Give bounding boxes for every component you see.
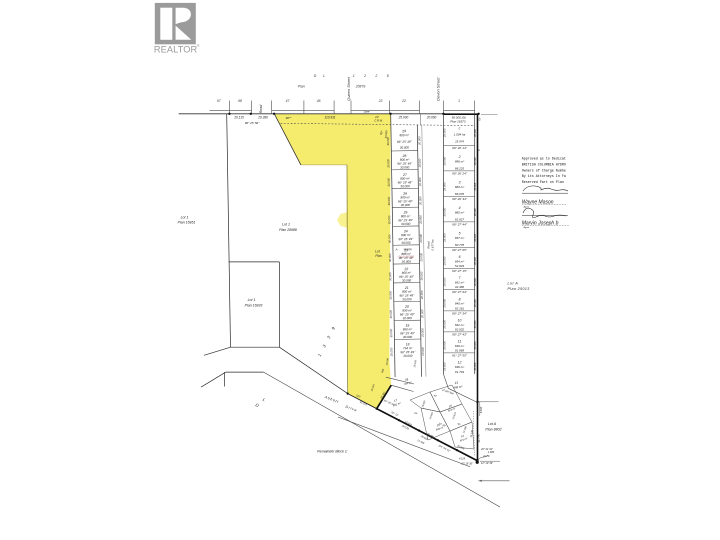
- svg-text:12: 12: [458, 361, 462, 365]
- svg-text:1.004 ha: 1.004 ha: [454, 132, 466, 136]
- svg-text:25.000: 25.000: [442, 277, 446, 287]
- svg-text:30.000: 30.000: [403, 316, 413, 320]
- svg-text:90° 26' 34": 90° 26' 34": [452, 197, 468, 201]
- svg-text:25.000: 25.000: [442, 298, 446, 308]
- svg-text:890 m²: 890 m²: [402, 308, 412, 312]
- svg-text:Lot A: Lot A: [508, 281, 519, 285]
- svg-text:20.000: 20.000: [421, 347, 425, 357]
- svg-text:91.704: 91.704: [455, 370, 465, 374]
- svg-text:67: 67: [217, 99, 221, 103]
- svg-text:20.000: 20.000: [474, 208, 477, 217]
- svg-text:896 m²: 896 m²: [455, 159, 465, 163]
- svg-text:20.000: 20.000: [420, 271, 424, 281]
- svg-text:22: 22: [401, 99, 406, 103]
- svg-text:Remainder Block C: Remainder Block C: [317, 449, 348, 453]
- svg-text:68: 68: [238, 99, 242, 103]
- svg-text:30.000: 30.000: [388, 291, 392, 300]
- svg-text:90.000 (D): 90.000 (D): [452, 116, 466, 120]
- svg-text:30.000: 30.000: [401, 222, 411, 226]
- svg-text:PCP 12336: PCP 12336: [398, 255, 414, 259]
- svg-text:86.076: 86.076: [455, 192, 465, 196]
- svg-text:20.000: 20.000: [474, 233, 477, 242]
- svg-text:90° 27' 44": 90° 27' 44": [452, 222, 468, 226]
- svg-text:20.000: 20.000: [418, 158, 422, 168]
- svg-text:1 2 2 8: 1 2 2 8: [353, 74, 393, 78]
- svg-text:23': 23': [374, 115, 379, 119]
- svg-text:30.000: 30.000: [389, 347, 393, 356]
- svg-text:25.000: 25.000: [442, 362, 446, 372]
- svg-text:30.000: 30.000: [387, 178, 391, 187]
- svg-text:800 m²: 800 m²: [401, 233, 411, 237]
- svg-text:90° 27' 05": 90° 27' 05": [452, 248, 468, 252]
- svg-text:20.000: 20.000: [420, 290, 424, 300]
- svg-text:7: 7: [459, 276, 461, 280]
- svg-text:30.000: 30.000: [388, 253, 392, 262]
- svg-text:800 m²: 800 m²: [402, 271, 412, 275]
- svg-text:30.000: 30.000: [389, 310, 393, 319]
- svg-text:92.161: 92.161: [455, 307, 465, 311]
- svg-text:12° 19' 36": 12° 19' 36": [481, 462, 493, 465]
- svg-text:20.000: 20.000: [474, 299, 477, 308]
- svg-text:91.869: 91.869: [455, 349, 465, 353]
- svg-text:REALTOR: REALTOR: [154, 45, 198, 55]
- svg-text:110.931: 110.931: [324, 115, 335, 119]
- svg-text:Plan: Plan: [375, 254, 382, 258]
- svg-text:25.000: 25.000: [442, 156, 446, 166]
- svg-text:91° 27' 55": 91° 27' 55": [452, 353, 468, 357]
- svg-text:Lot A: Lot A: [488, 422, 497, 426]
- svg-text:82.827: 82.827: [455, 218, 465, 222]
- svg-text:Plan: Plan: [298, 85, 305, 89]
- svg-text:Lot: Lot: [375, 249, 380, 253]
- svg-text:25.000: 25.000: [442, 207, 446, 217]
- svg-text:30.000: 30.000: [386, 159, 390, 168]
- svg-text:654 m²: 654 m²: [455, 259, 465, 263]
- svg-text:25.000: 25.000: [442, 182, 446, 192]
- svg-text:90° 27' 04": 90° 27' 04": [452, 290, 468, 294]
- svg-text:20.000: 20.000: [420, 309, 424, 319]
- svg-text:Plan 26373: Plan 26373: [450, 120, 466, 124]
- svg-text:Lot 1: Lot 1: [181, 215, 189, 219]
- svg-text:20.000: 20.000: [474, 341, 477, 350]
- svg-text:Devon Street: Devon Street: [436, 77, 441, 101]
- svg-text:23: 23: [378, 99, 383, 103]
- svg-text:20.000: 20.000: [474, 182, 477, 191]
- svg-text:By its Attorneys In Fa: By its Attorneys In Fa: [522, 174, 566, 179]
- svg-text:60° 27' 15": 60° 27' 15": [452, 269, 468, 273]
- svg-text:20.000: 20.000: [474, 128, 477, 137]
- svg-text:25.000: 25.000: [442, 341, 446, 351]
- svg-text:651 m²: 651 m²: [455, 280, 465, 284]
- svg-text:90° 26' 14": 90° 26' 14": [452, 146, 468, 150]
- svg-text:30.000: 30.000: [402, 260, 412, 264]
- svg-text:Queen Street: Queen Street: [346, 76, 351, 101]
- svg-text:20.000: 20.000: [474, 362, 477, 371]
- svg-text:6: 6: [459, 255, 461, 259]
- svg-text:Lot 1: Lot 1: [248, 298, 256, 302]
- svg-text:96° 25' 56": 96° 25' 56": [245, 121, 260, 125]
- svg-text:30.000: 30.000: [388, 234, 392, 243]
- svg-text:20.000: 20.000: [474, 157, 477, 166]
- svg-text:3: 3: [459, 181, 461, 185]
- svg-text:BRITISH COLUMBIA HYDRO: BRITISH COLUMBIA HYDRO: [522, 163, 566, 167]
- svg-text:®: ®: [197, 43, 200, 48]
- svg-text:8.810: 8.810: [480, 406, 483, 413]
- svg-text:92.002: 92.002: [455, 328, 465, 332]
- svg-text:30.000: 30.000: [400, 184, 410, 188]
- svg-text:4.176: 4.176: [483, 455, 490, 458]
- svg-text:800 m²: 800 m²: [401, 214, 411, 218]
- svg-text:30.000: 30.000: [400, 165, 410, 169]
- svg-text:20.380: 20.380: [257, 116, 268, 120]
- svg-text:4: 4: [459, 206, 461, 210]
- svg-text:25.000: 25.000: [442, 233, 446, 243]
- svg-text:10: 10: [458, 319, 462, 323]
- svg-text:20.000: 20.000: [419, 215, 423, 225]
- svg-text:20.000: 20.000: [419, 234, 423, 244]
- svg-text:86.225: 86.225: [455, 167, 465, 171]
- svg-text:8: 8: [459, 297, 461, 301]
- svg-text:30.000: 30.000: [388, 272, 392, 281]
- svg-text:800 m²: 800 m²: [400, 195, 410, 199]
- svg-text:657 m²: 657 m²: [455, 236, 465, 240]
- svg-text:30.000: 30.000: [387, 196, 391, 205]
- svg-text:25.000: 25.000: [442, 128, 446, 138]
- svg-text:20.000: 20.000: [417, 136, 421, 146]
- svg-text:47: 47: [286, 99, 290, 103]
- svg-text:20.115: 20.115: [233, 116, 244, 120]
- svg-text:20.000: 20.000: [474, 320, 477, 329]
- svg-text:52.629: 52.629: [455, 264, 465, 268]
- svg-text:683 m²: 683 m²: [455, 185, 465, 189]
- svg-text:800 m²: 800 m²: [399, 133, 409, 137]
- svg-text:800 m²: 800 m²: [402, 290, 412, 294]
- svg-text:890 m²: 890 m²: [403, 327, 413, 331]
- svg-text:20.000: 20.000: [420, 328, 424, 338]
- svg-text:90°*: 90°*: [286, 116, 293, 120]
- svg-text:20.000: 20.000: [474, 278, 477, 287]
- svg-text:Lot 1: Lot 1: [282, 222, 290, 226]
- svg-text:30.000: 30.000: [402, 278, 412, 282]
- svg-text:1: 1: [458, 99, 460, 103]
- svg-text:20.000: 20.000: [418, 177, 422, 187]
- svg-text:29: 29: [401, 129, 406, 133]
- svg-text:80° 27' 34": 80° 27' 34": [452, 311, 468, 315]
- svg-text:Wayne Mason: Wayne Mason: [522, 200, 554, 206]
- svg-text:20.000: 20.000: [474, 257, 477, 266]
- svg-text:25.000: 25.000: [442, 320, 446, 330]
- svg-text:Reserved Part on Plan: Reserved Part on Plan: [522, 180, 564, 185]
- svg-text:4.119: 4.119: [459, 458, 466, 461]
- svg-text:636 m²: 636 m²: [455, 365, 465, 369]
- svg-text:Owners of Charge Numbe: Owners of Charge Numbe: [522, 168, 566, 173]
- svg-text:90° 27' 43": 90° 27' 43": [452, 332, 468, 336]
- svg-text:90° 26' 24": 90° 26' 24": [452, 171, 468, 175]
- svg-text:800 m²: 800 m²: [400, 158, 410, 162]
- svg-text:25.974: 25.974: [454, 140, 464, 144]
- svg-text:5: 5: [459, 232, 461, 236]
- svg-text:Approved as to Dedicat: Approved as to Dedicat: [522, 157, 566, 162]
- svg-text:Plan 16933: Plan 16933: [245, 303, 263, 307]
- svg-text:25.000: 25.000: [442, 256, 446, 266]
- svg-text:30.000: 30.000: [401, 241, 411, 245]
- svg-text:Plan 25013: Plan 25013: [508, 287, 530, 291]
- svg-text:Plan 8802: Plan 8802: [485, 427, 501, 431]
- svg-text:1.688: 1.688: [488, 451, 495, 454]
- svg-text:46: 46: [317, 99, 321, 103]
- svg-text:32.480: 32.480: [455, 285, 465, 289]
- svg-text:0.677 ha: 0.677 ha: [430, 239, 434, 250]
- svg-text:30.000: 30.000: [402, 297, 412, 301]
- svg-text:20.000: 20.000: [419, 252, 423, 262]
- svg-text:640 m²: 640 m²: [455, 302, 465, 306]
- svg-text:30.000: 30.000: [403, 354, 413, 358]
- svg-text:20.000: 20.000: [418, 196, 422, 206]
- svg-text:Plan 28988: Plan 28988: [279, 228, 297, 232]
- svg-text:660 m²: 660 m²: [455, 210, 465, 214]
- svg-text:25.000: 25.000: [398, 116, 409, 120]
- svg-text:30.000: 30.000: [389, 328, 393, 337]
- svg-text:30.000: 30.000: [401, 203, 411, 207]
- svg-text:30.000: 30.000: [403, 335, 413, 339]
- svg-text:80.778: 80.778: [455, 243, 465, 247]
- svg-text:D L: D L: [314, 74, 328, 78]
- svg-text:12° 19' 36": 12° 19' 36": [461, 463, 473, 466]
- svg-text:800 m²: 800 m²: [400, 176, 410, 180]
- svg-text:96° 25' 49": 96° 25' 49": [397, 140, 413, 144]
- svg-text:11: 11: [458, 340, 462, 344]
- svg-text:842 m²: 842 m²: [455, 323, 465, 327]
- svg-text:Plan 16951: Plan 16951: [178, 221, 196, 225]
- svg-text:30.000: 30.000: [400, 145, 410, 149]
- svg-text:30.000: 30.000: [387, 215, 391, 224]
- svg-text:764 m²: 764 m²: [403, 346, 413, 350]
- svg-text:20° 41' 02": 20° 41' 02": [480, 448, 493, 451]
- svg-text:Road: Road: [426, 241, 430, 249]
- svg-text:20.000: 20.000: [426, 116, 437, 120]
- svg-text:c: c: [459, 126, 461, 130]
- svg-text:20879: 20879: [355, 85, 366, 89]
- svg-text:Road: Road: [259, 104, 263, 114]
- svg-text:639 m²: 639 m²: [455, 344, 465, 348]
